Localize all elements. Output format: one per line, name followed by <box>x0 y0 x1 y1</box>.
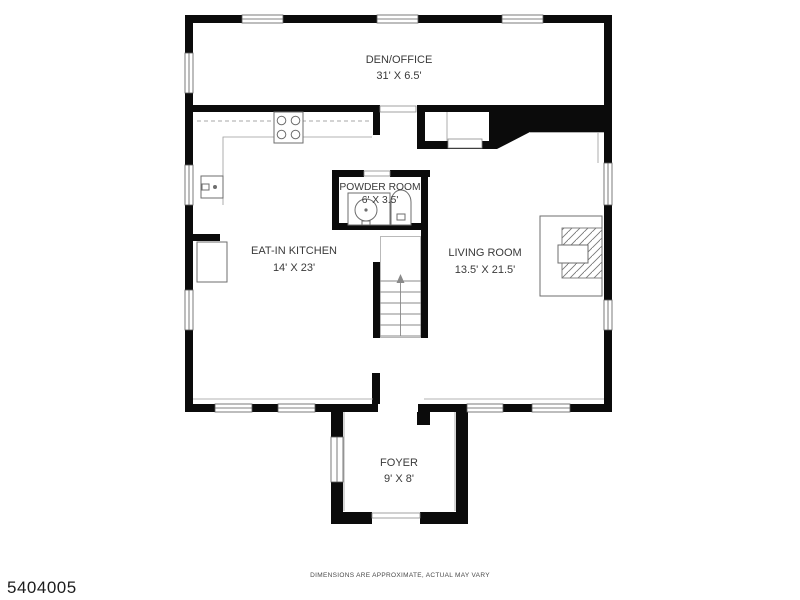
floor-plan-page: DEN/OFFICE 31' X 6.5' POWDER ROOM 6' X 3… <box>0 0 800 600</box>
window <box>215 404 252 412</box>
window <box>467 404 503 412</box>
room-label-living-room: LIVING ROOM 13.5' X 21.5' <box>448 247 521 276</box>
window <box>502 15 543 23</box>
window <box>242 15 283 23</box>
window <box>278 404 315 412</box>
stair-direction-arrow <box>397 274 405 283</box>
fireplace-icon <box>540 216 602 296</box>
kitchen-sink-icon <box>201 176 223 198</box>
window <box>377 15 418 23</box>
window <box>331 437 343 482</box>
floor-plan-drawing: DEN/OFFICE 31' X 6.5' POWDER ROOM 6' X 3… <box>0 0 800 600</box>
room-dimensions: 9' X 8' <box>384 473 414 485</box>
room-name: DEN/OFFICE <box>366 54 433 66</box>
staircase-icon <box>380 237 421 338</box>
window <box>604 163 612 205</box>
room-name: POWDER ROOM <box>339 182 420 193</box>
window <box>185 290 193 330</box>
window <box>185 165 193 205</box>
room-dimensions: 14' X 23' <box>273 262 315 274</box>
refrigerator-icon <box>197 242 227 282</box>
listing-id: 5404005 <box>7 578 77 598</box>
dimensions-disclaimer: DIMENSIONS ARE APPROXIMATE, ACTUAL MAY V… <box>0 572 800 579</box>
room-dimensions: 6' X 3.5' <box>362 195 399 206</box>
window <box>532 404 570 412</box>
stove-icon <box>274 112 303 143</box>
front-door-opening <box>372 513 420 518</box>
room-dimensions: 31' X 6.5' <box>376 70 421 82</box>
window <box>185 53 193 93</box>
room-label-den-office: DEN/OFFICE 31' X 6.5' <box>366 54 433 82</box>
window <box>604 300 612 330</box>
door-opening <box>364 171 390 176</box>
room-label-eat-in-kitchen: EAT-IN KITCHEN 14' X 23' <box>251 245 337 274</box>
door-opening <box>380 106 416 112</box>
room-label-foyer: FOYER 9' X 8' <box>380 457 418 485</box>
room-name: EAT-IN KITCHEN <box>251 245 337 257</box>
room-name: FOYER <box>380 457 418 469</box>
room-name: LIVING ROOM <box>448 247 521 259</box>
room-dimensions: 13.5' X 21.5' <box>455 264 515 276</box>
